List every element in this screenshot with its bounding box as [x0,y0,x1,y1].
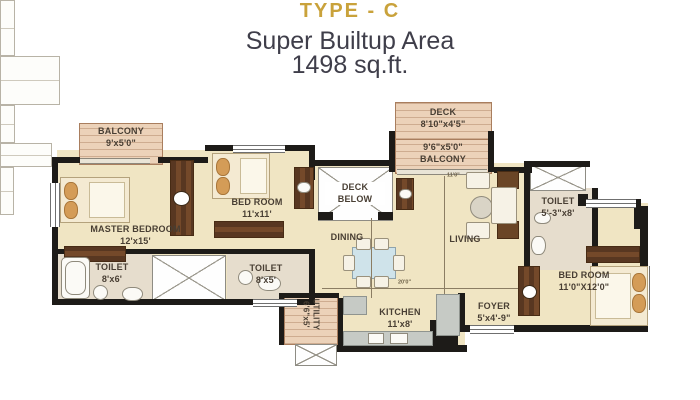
room-label-toilet3: TOILET 5'-3"x8' [528,196,588,219]
door-panel [518,266,540,316]
room-name: FOYER [468,301,520,313]
room-name: UTILITY [310,291,320,337]
wall [52,157,58,305]
room-size: 9'x5'0" [84,138,158,150]
door-knob [522,285,537,299]
wall [524,161,590,167]
window [253,299,297,307]
kitchen-hob [390,333,408,344]
dimension-line [322,288,518,289]
ledge [0,143,52,167]
room-label-balcony1: BALCONY 9'x5'0" [84,126,158,149]
room-label-toilet1: TOILET 8'x6' [82,262,142,285]
wall [378,212,393,220]
room-name: DECK [400,107,486,119]
wall [318,212,333,220]
master-bed [60,177,130,223]
room-size: 11'x8' [368,319,432,331]
pillow [632,273,646,292]
wall [488,131,494,172]
door-knob [173,191,190,206]
room-size: 5'-3"x8' [528,208,588,220]
wall [640,206,648,266]
wardrobe [214,221,284,238]
dining-chair [374,276,389,288]
room-name: TOILET [528,196,588,208]
room-label-bedroom2: BED ROOM 11'x11' [217,197,297,220]
duct-void [152,255,226,301]
room-size: 11'x11' [217,209,297,221]
pillow [216,158,230,176]
room-size: 9'6"x5'0" [400,142,486,154]
room-label-master: MASTER BEDROOM 12'x15' [63,224,208,247]
window [50,183,60,227]
wall [52,157,80,163]
pillow [64,182,78,200]
wall [337,345,467,352]
room-size: 8'x5' [235,275,297,287]
room-size: 6'6"x5' [300,291,310,337]
dimension-label: 11'0" [447,172,460,178]
room-name: DECK [325,182,385,194]
ledge [0,0,15,56]
ledge [0,56,60,105]
dimension-label: 20'0" [398,279,411,285]
wash-basin-counter [396,178,414,210]
room-name: MASTER BEDROOM [63,224,208,236]
room-label-deck: DECK 8'10"x4'5" [400,107,486,130]
kitchen-counter [343,331,433,346]
room-size: 11'0"X12'0" [550,282,618,294]
coffee-table [470,196,493,219]
room-label-utility: UTILITY 6'6"x5' [300,291,321,337]
room-label-balcony2: 9'6"x5'0" BALCONY [400,142,486,165]
room-name: BED ROOM [217,197,297,209]
ledge [0,167,14,215]
wall [389,131,395,172]
bedroom2-bed [212,153,270,199]
window [233,145,285,153]
room-name: DINING [318,232,376,244]
toilet-wc [122,287,143,301]
pillow [64,201,78,219]
sofa [491,187,517,224]
wash-basin-counter [294,167,314,209]
room-name: TOILET [235,263,297,275]
dining-chair [393,255,405,271]
wash-basin [399,189,412,199]
room-name: TOILET [82,262,142,274]
pillow [216,177,230,195]
shaft-void [530,164,586,191]
room-name: BALCONY [84,126,158,138]
room-label-kitchen: KITCHEN 11'x8' [368,307,432,330]
floor-plan: 20'0" 11'0" BALCONY 9'x5'0" MASTER BEDRO… [0,0,700,400]
kitchen-sink [368,333,384,344]
room-size: 12'x15' [63,236,208,248]
room-size: 8'10"x4'5" [400,119,486,131]
dimension-line [371,218,372,298]
room-label-living: LIVING [440,234,490,246]
room-label-foyer: FOYER 5'x4'-9" [468,301,520,324]
bed-sheet [240,158,267,194]
bed-sheet [89,182,125,218]
fridge [436,294,460,336]
room-name: BELOW [325,194,385,206]
toilet-wc [531,236,546,255]
room-label-deck-below: DECK BELOW [325,182,385,205]
room-label-dining: DINING [318,232,376,244]
wash-basin [93,285,108,300]
dining-chair [374,238,389,250]
room-label-bedroom3: BED ROOM 11'0"X12'0" [550,270,618,293]
entrance-door [470,325,514,334]
wall [313,160,395,166]
pillow [632,294,646,313]
room-label-toilet2: TOILET 8'x5' [235,263,297,286]
armchair [466,172,490,189]
dining-table [352,247,396,279]
kitchen-counter [343,296,367,315]
room-size: 5'x4'-9" [468,313,520,325]
room-name: KITCHEN [368,307,432,319]
utility-duct [295,344,337,366]
room-name: BALCONY [400,154,486,166]
dining-chair [343,255,355,271]
ledge [0,105,15,143]
wardrobe [586,246,640,263]
room-name: LIVING [440,234,490,246]
wash-basin [297,182,311,193]
window [586,199,636,208]
sliding-door [80,158,150,164]
dining-chair [356,276,371,288]
room-size: 8'x6' [82,274,142,286]
room-name: BED ROOM [550,270,618,282]
